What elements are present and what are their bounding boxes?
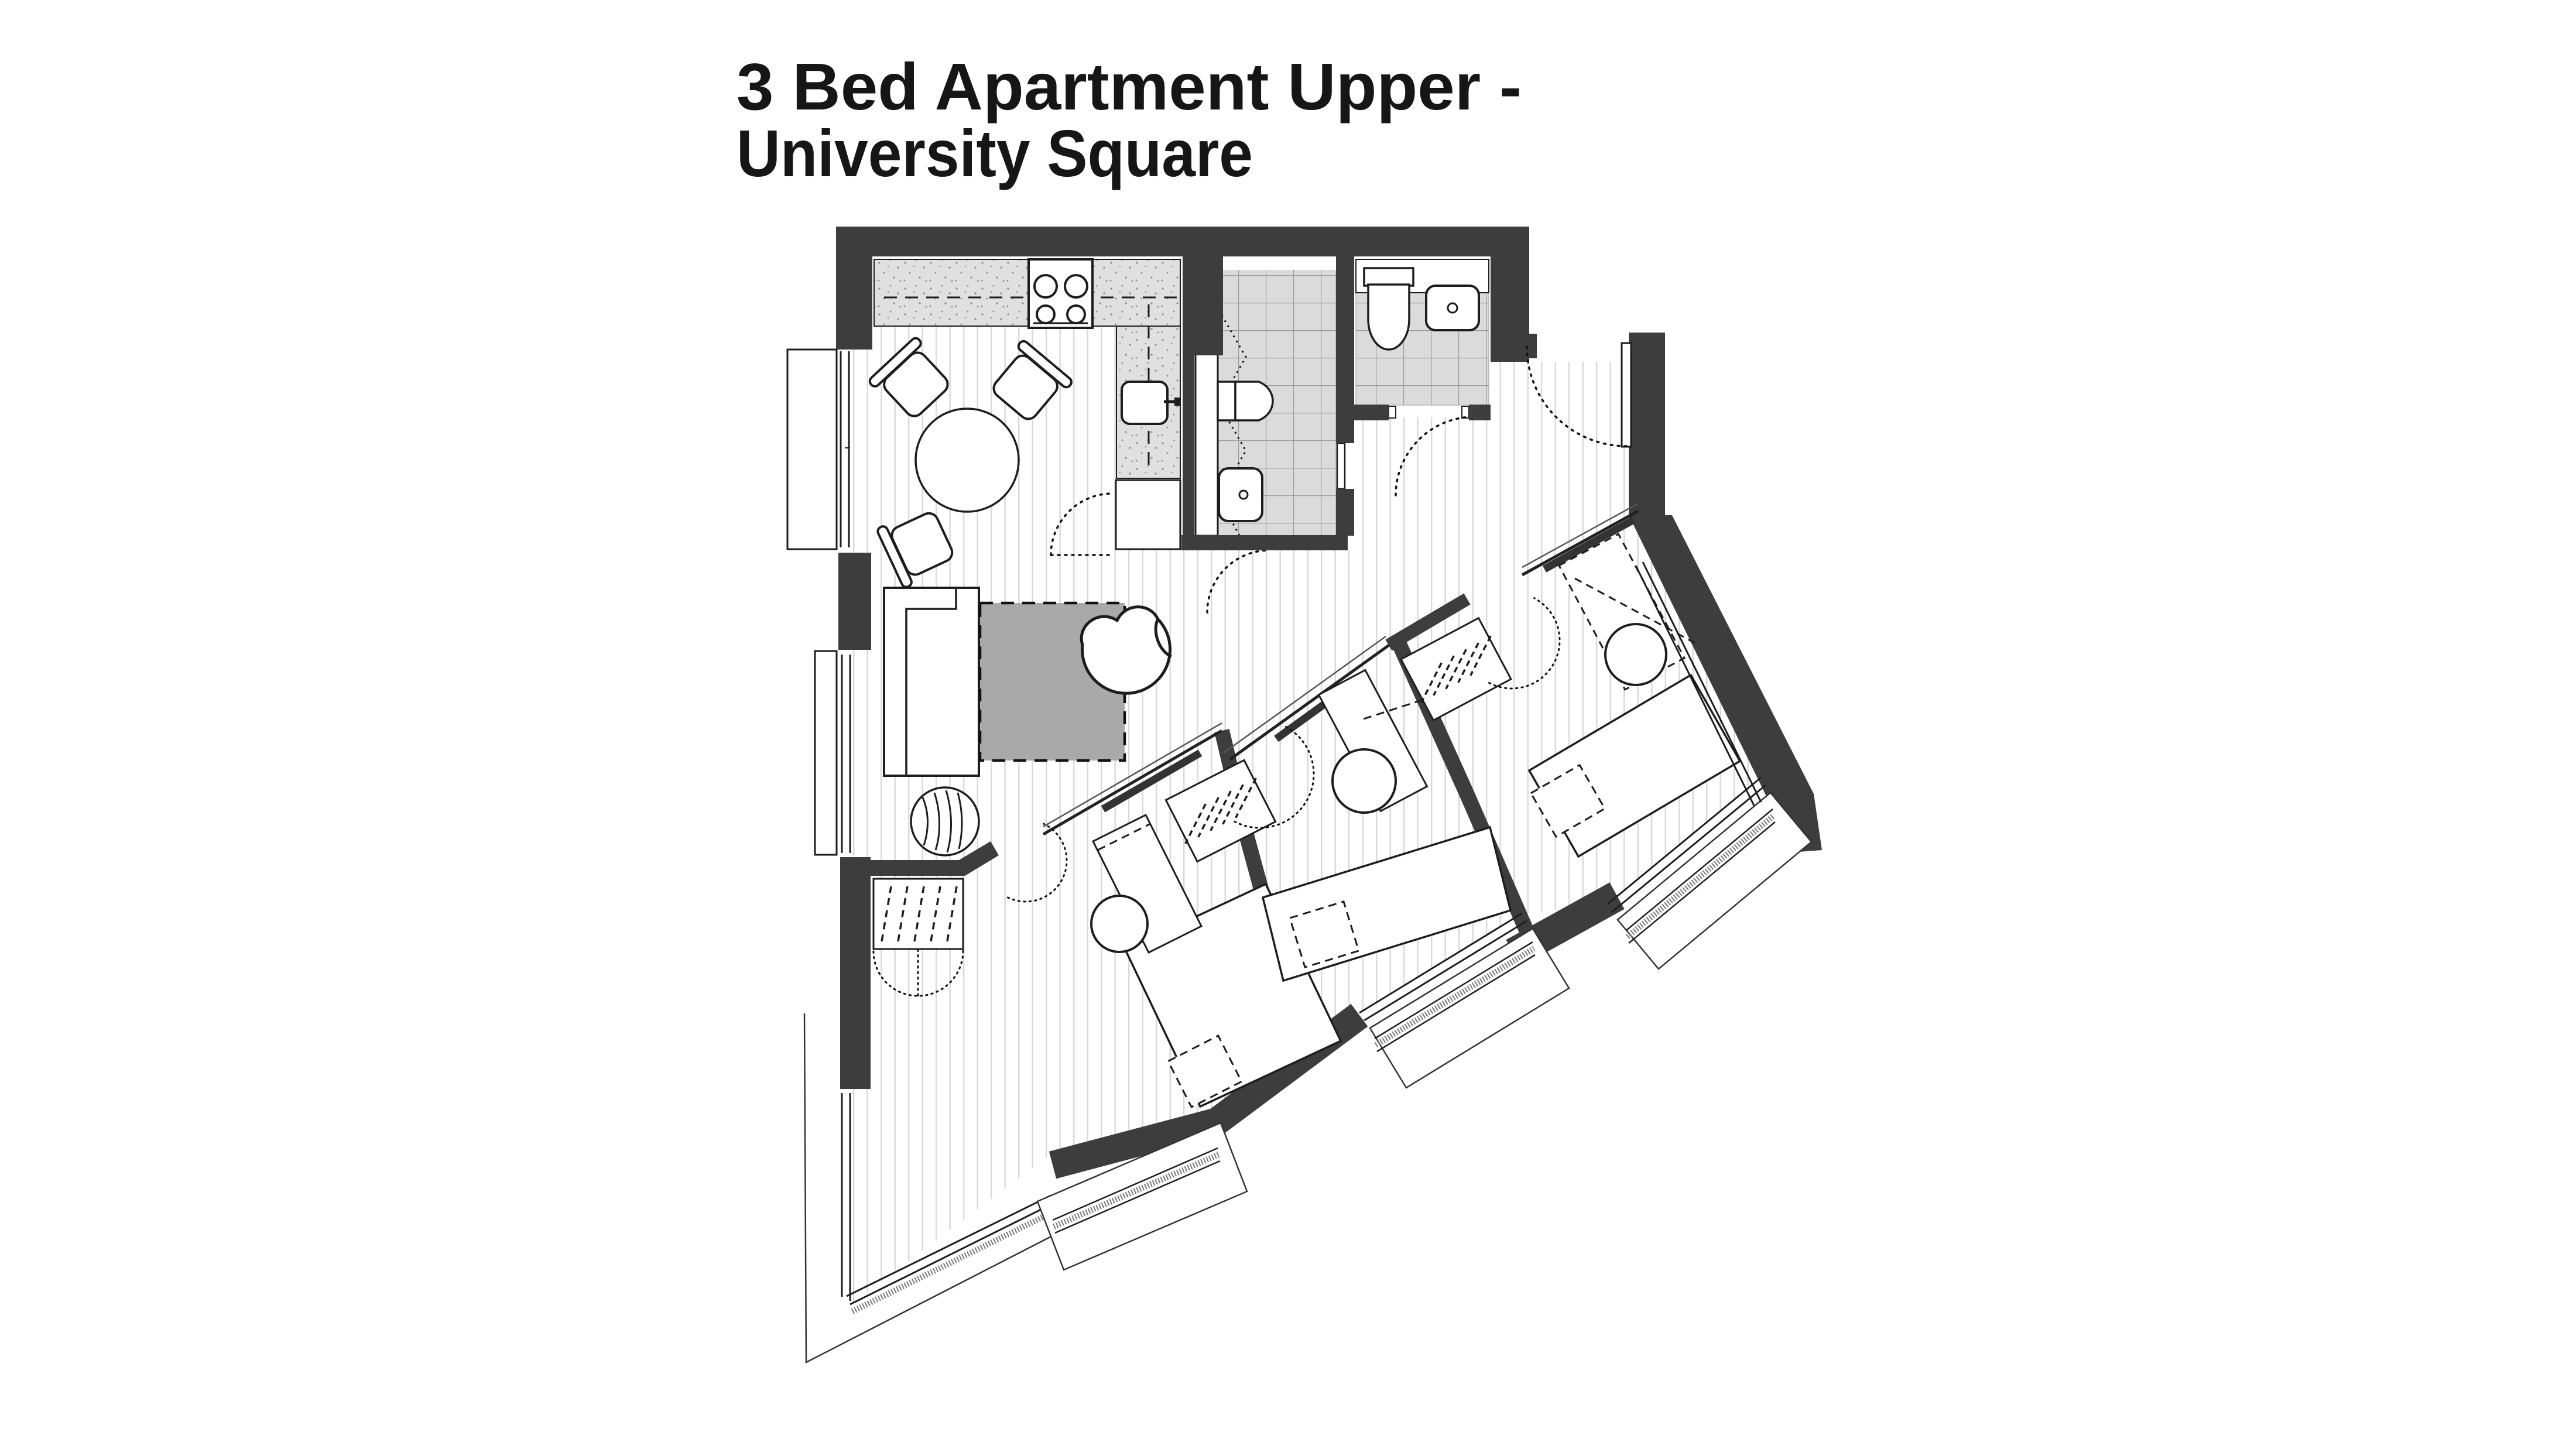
svg-text:University Square: University Square [737, 117, 1253, 190]
svg-text:3 Bed Apartment Upper -: 3 Bed Apartment Upper - [737, 50, 1522, 124]
